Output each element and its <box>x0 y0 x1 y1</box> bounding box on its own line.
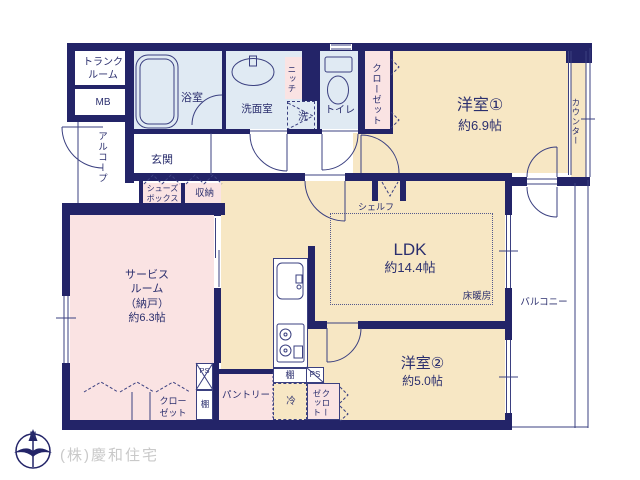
wall-segment <box>390 51 393 133</box>
label-fridge: 冷 <box>276 396 306 408</box>
wall-segment <box>308 321 327 329</box>
label-trunk-room: トランク ルーム <box>78 56 128 82</box>
room-western1-nook <box>353 133 393 173</box>
label-ldk: LDK <box>360 239 460 261</box>
balcony-door-opening <box>527 177 557 186</box>
wall-segment <box>358 321 512 329</box>
sliding-door-opening <box>214 216 221 288</box>
wall-segment <box>358 51 365 133</box>
label-bath: 浴室 <box>170 91 214 105</box>
wall-segment <box>222 51 226 129</box>
label-shoebox: シューズ ボックス <box>143 184 182 205</box>
floor-plan: トランク ルーム MB アルコープ 浴室 洗面室 ニッチ 洗 トイレ クローゼッ… <box>0 0 640 480</box>
wall-segment <box>133 129 250 134</box>
wall-segment <box>358 129 393 134</box>
label-ps-left: PS <box>196 366 213 376</box>
wall-segment <box>67 43 75 122</box>
window <box>505 215 512 288</box>
wall-segment <box>345 173 512 181</box>
room-bath <box>133 51 222 129</box>
wall-segment <box>566 43 592 63</box>
wall-segment <box>67 43 568 51</box>
wall-segment <box>62 420 512 430</box>
company-name: (株)慶和住宅 <box>60 446 240 466</box>
wall-segment <box>127 173 305 181</box>
wall-segment <box>287 129 322 134</box>
washroom-door-arc <box>250 134 287 171</box>
label-pantry: パントリー <box>217 390 275 402</box>
wall-segment <box>302 51 320 101</box>
label-service-room: サービス ルーム （納戸） 約6.3帖 <box>95 268 199 325</box>
window <box>505 340 512 413</box>
wall-segment <box>317 101 320 131</box>
label-western1-size: 約6.9帖 <box>430 118 530 135</box>
label-shelf-left: 棚 <box>197 399 213 410</box>
label-closet-top: クローゼット <box>370 61 380 127</box>
wall-segment <box>75 85 125 89</box>
window <box>62 296 70 363</box>
label-shelf-kitchen: 棚 <box>275 370 305 382</box>
label-genkan: 玄関 <box>140 153 184 167</box>
label-washer: 洗 <box>290 111 316 124</box>
label-closet-bl: クロー ゼット <box>152 396 194 419</box>
label-western1: 洋室① <box>430 96 530 117</box>
label-washroom: 洗面室 <box>234 103 280 117</box>
label-closet-bottom: クロー ゼット <box>312 386 330 420</box>
label-shelf: シェルフ <box>350 202 402 214</box>
wall-segment <box>308 246 315 329</box>
compass-north-label: N <box>26 430 40 442</box>
wall-segment <box>67 115 133 122</box>
wall-segment <box>213 369 273 374</box>
label-toilet: トイレ <box>322 104 358 117</box>
wall-segment <box>62 203 225 215</box>
label-western2-size: 約5.0帖 <box>380 374 465 390</box>
window <box>330 44 352 50</box>
label-floor-heating: 床暖房 <box>455 291 499 303</box>
label-balcony: バルコニー <box>515 297 573 309</box>
kitchen-counter <box>273 258 308 368</box>
label-ps-kitchen: PS <box>306 370 324 380</box>
label-counter: カウンター <box>571 92 580 152</box>
label-western2: 洋室② <box>380 354 465 374</box>
label-mb: MB <box>78 96 128 109</box>
label-niche: ニッチ <box>287 60 296 98</box>
label-storage: 収納 <box>186 188 223 200</box>
label-alcove: アルコープ <box>96 128 106 186</box>
label-ldk-size: 約14.4帖 <box>360 260 460 277</box>
room-toilet <box>320 51 358 129</box>
